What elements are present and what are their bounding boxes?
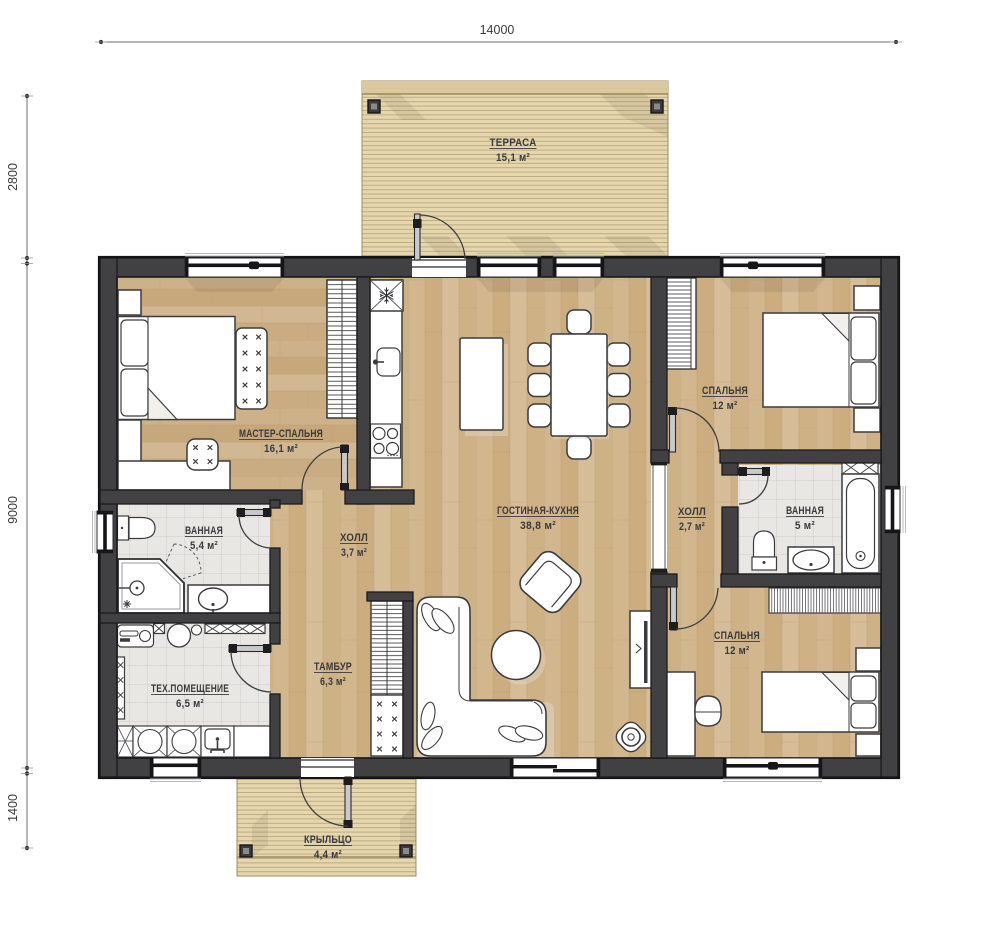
svg-text:1400: 1400: [6, 794, 20, 822]
svg-text:ТЕРРАСА: ТЕРРАСА: [490, 137, 537, 149]
svg-text:СПАЛЬНЯ: СПАЛЬНЯ: [702, 385, 748, 397]
svg-text:ТЕХ.ПОМЕЩЕНИЕ: ТЕХ.ПОМЕЩЕНИЕ: [151, 683, 229, 695]
svg-text:4,4 м²: 4,4 м²: [314, 849, 342, 861]
svg-text:14000: 14000: [480, 23, 515, 37]
svg-text:12 м²: 12 м²: [725, 645, 750, 657]
svg-text:3,7 м²: 3,7 м²: [341, 547, 367, 559]
svg-text:ВАННАЯ: ВАННАЯ: [185, 525, 223, 537]
svg-text:СПАЛЬНЯ: СПАЛЬНЯ: [714, 630, 760, 642]
svg-text:2800: 2800: [6, 163, 20, 191]
svg-text:КРЫЛЬЦО: КРЫЛЬЦО: [304, 834, 352, 846]
svg-text:ГОСТИНАЯ-КУХНЯ: ГОСТИНАЯ-КУХНЯ: [497, 505, 579, 517]
svg-text:9000: 9000: [6, 496, 20, 524]
svg-text:ХОЛЛ: ХОЛЛ: [340, 532, 368, 544]
svg-text:ХОЛЛ: ХОЛЛ: [678, 506, 706, 518]
svg-text:6,3 м²: 6,3 м²: [320, 676, 346, 688]
svg-text:2,7 м²: 2,7 м²: [679, 521, 705, 533]
svg-text:МАСТЕР-СПАЛЬНЯ: МАСТЕР-СПАЛЬНЯ: [239, 428, 323, 440]
svg-text:38,8 м²: 38,8 м²: [520, 520, 556, 532]
svg-text:6,5 м²: 6,5 м²: [176, 698, 204, 710]
svg-text:15,1 м²: 15,1 м²: [496, 152, 530, 164]
svg-text:5 м²: 5 м²: [795, 520, 815, 532]
svg-text:12 м²: 12 м²: [713, 400, 738, 412]
svg-text:ВАННАЯ: ВАННАЯ: [786, 505, 824, 517]
svg-text:16,1 м²: 16,1 м²: [264, 443, 298, 455]
svg-text:5,4 м²: 5,4 м²: [190, 540, 218, 552]
svg-text:ТАМБУР: ТАМБУР: [314, 661, 352, 673]
